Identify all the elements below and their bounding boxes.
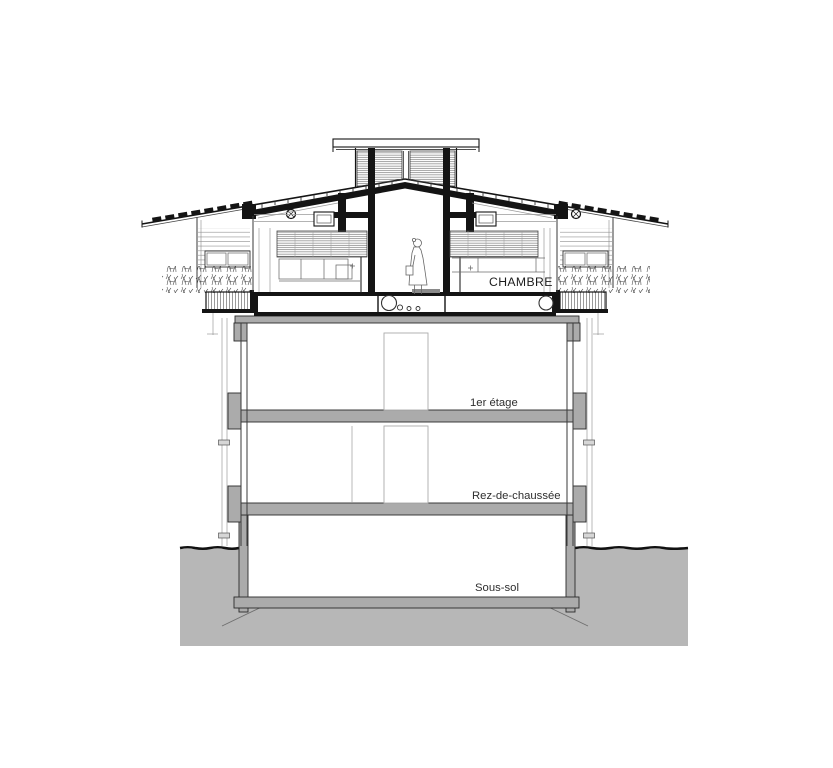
furniture-right: [452, 258, 545, 272]
threshold: [412, 289, 440, 293]
label-basement: Sous-sol: [475, 582, 519, 594]
furniture-left: [279, 259, 360, 281]
label-ground-floor: Rez-de-chaussée: [472, 490, 561, 502]
monitor-louvers-left: [357, 151, 402, 187]
label-chambre: CHAMBRE: [489, 275, 553, 289]
wall-head-right: [554, 204, 568, 219]
slab-cap-right-1: [573, 393, 586, 429]
wall-head-left: [242, 204, 256, 219]
corridor-post-left: [368, 148, 375, 293]
person-bag: [406, 266, 413, 275]
attic-slab-band: [235, 316, 579, 323]
slab-ground-floor: [235, 503, 579, 515]
clerestory-monitor: [333, 139, 479, 188]
planter-box-right: [560, 292, 606, 311]
pipe-collar: [584, 533, 595, 538]
corridor-post-right: [443, 148, 450, 293]
roof: [142, 179, 668, 228]
door-ground-floor: [384, 426, 428, 503]
ground-line-right: [575, 547, 688, 549]
slab-cap-left-1: [228, 393, 241, 429]
duct-circle-large-left: [382, 296, 397, 311]
slab-cap-right-2: [573, 486, 586, 522]
planter-box-left: [206, 292, 252, 311]
pipe-collar: [219, 533, 230, 538]
slab-cap-left-2: [228, 486, 241, 522]
duct-circle-small: [397, 305, 402, 310]
attic-floor-band: [256, 289, 554, 314]
duct-circle-large-right: [539, 296, 553, 310]
monitor-roof-slab: [333, 139, 479, 147]
pipe-collar: [219, 440, 230, 445]
section-drawing-canvas: CHAMBRE 1er étage Rez-de-chaussée Sous-s…: [0, 0, 833, 768]
duct-circle-small: [416, 307, 420, 311]
building-section-drawing: CHAMBRE 1er étage Rez-de-chaussée Sous-s…: [0, 0, 833, 768]
joist-band: [256, 294, 554, 314]
pipe-collar: [584, 440, 595, 445]
blind-band-left: [277, 231, 367, 257]
slab-first-floor: [235, 410, 579, 422]
foundation-slab: [234, 597, 579, 608]
door-first-floor: [384, 333, 428, 410]
eave-battens-left: [152, 201, 253, 222]
blind-band-right: [450, 231, 538, 257]
plants-right: [558, 266, 650, 293]
basement-structure: [234, 515, 579, 612]
duct-circle-small: [407, 307, 411, 311]
ground-line-left: [180, 547, 239, 549]
label-first-floor: 1er étage: [470, 397, 518, 409]
person-figure: [406, 238, 427, 294]
lintel-left: [332, 212, 374, 218]
plants-left: [162, 266, 252, 293]
